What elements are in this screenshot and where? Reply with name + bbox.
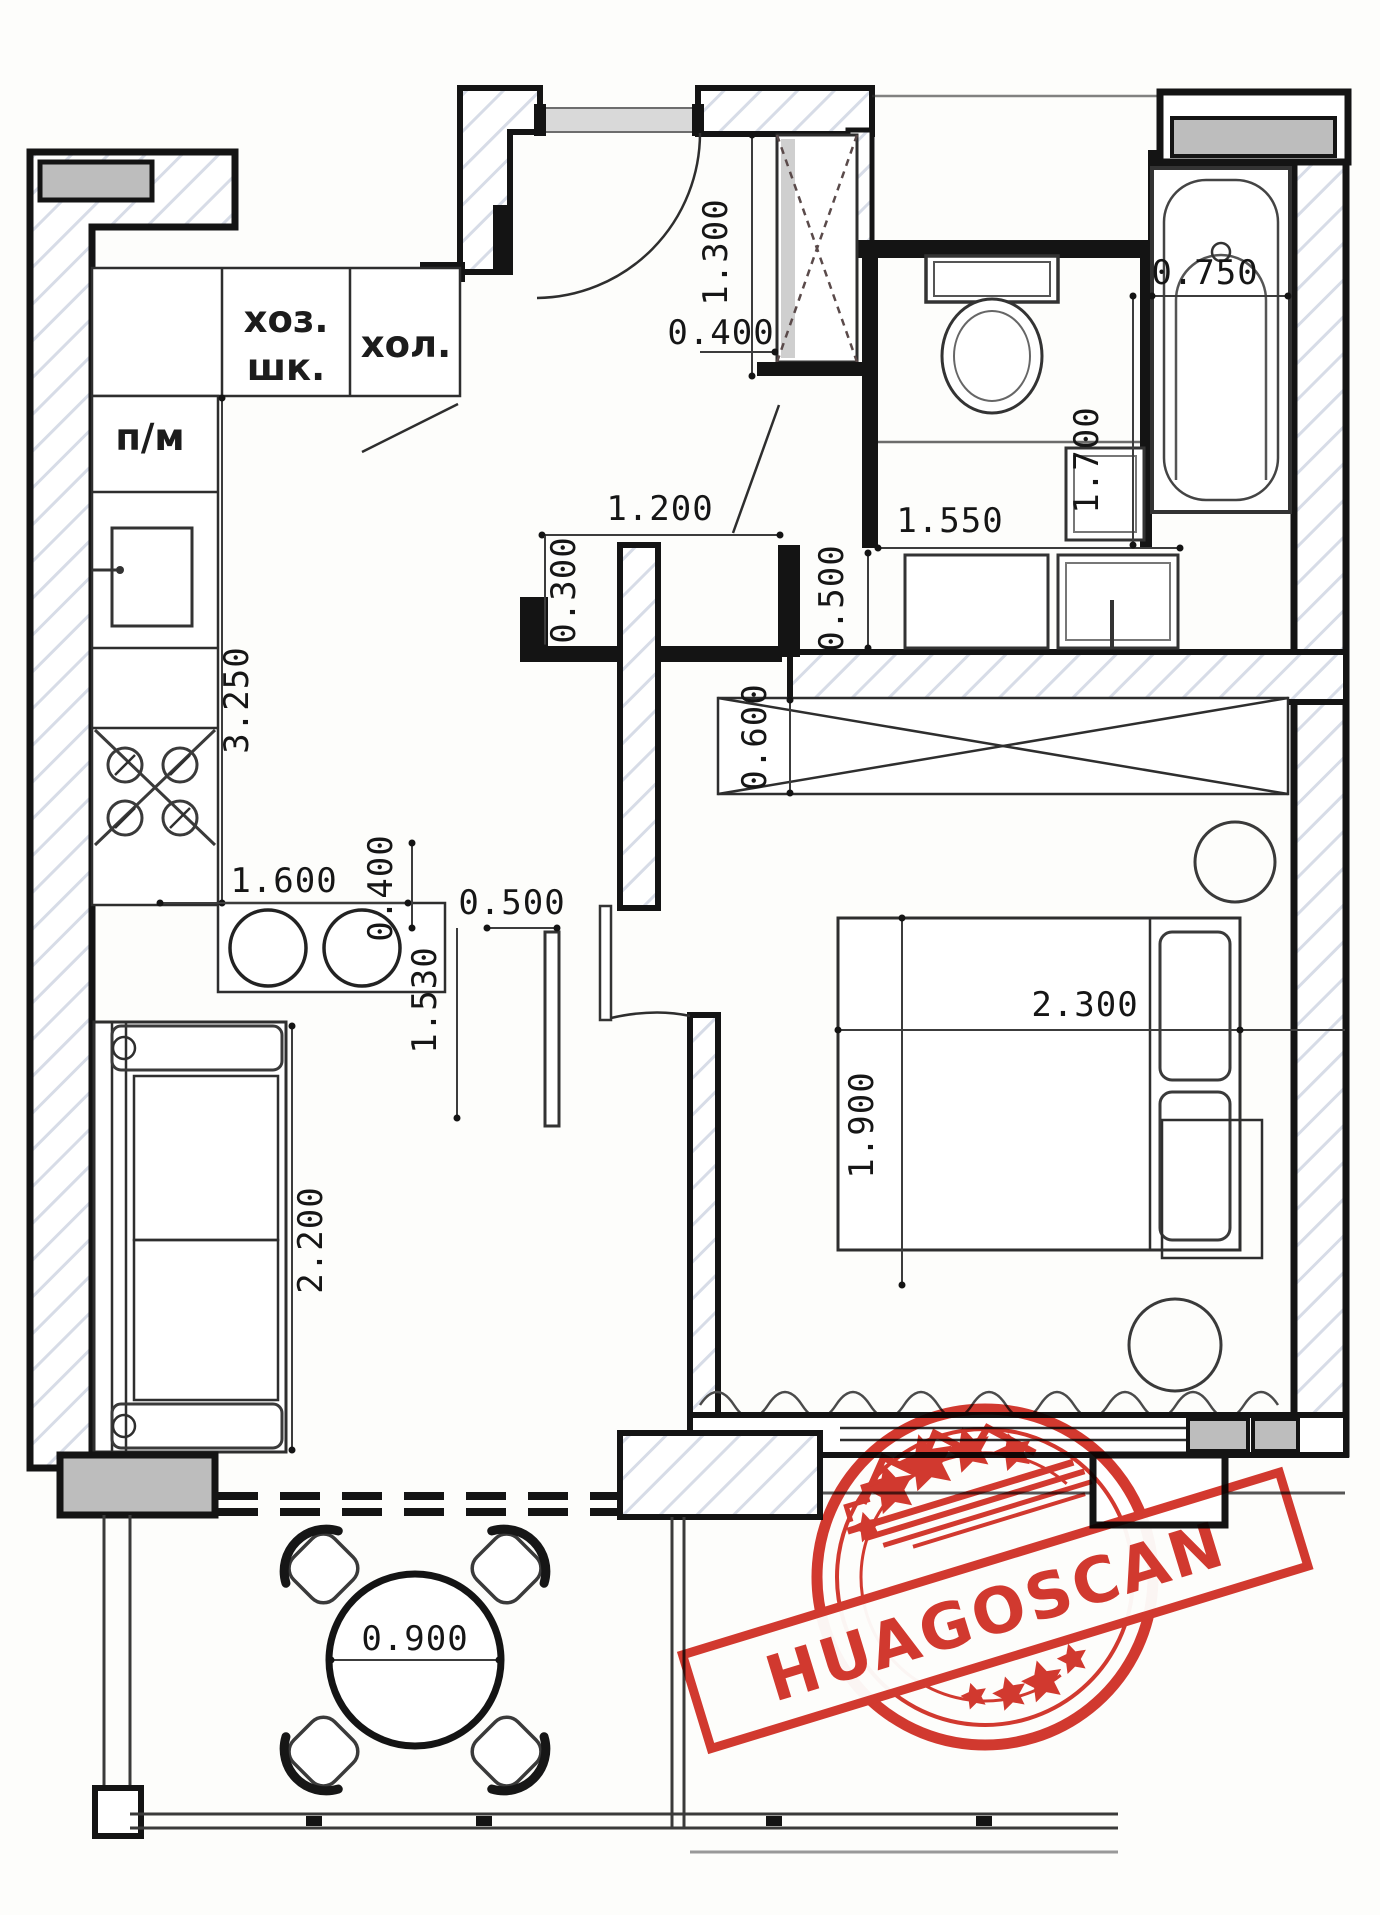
dim-counter-end: 1.600	[230, 861, 337, 901]
dim-hall-width: 1.200	[606, 489, 713, 529]
wall-balcony-corner	[60, 1455, 215, 1515]
dim-vanity-depth: 0.500	[812, 544, 852, 651]
interior-walls	[520, 258, 1152, 1435]
vanity-icon	[905, 555, 1178, 648]
floor-plan-scan: хоз. шк. хол. п/м 1.300 0.400 0.750 1.70…	[0, 0, 1380, 1915]
bedroom	[690, 698, 1346, 1525]
label-fridge: хол.	[361, 323, 451, 366]
floor-plan: хоз. шк. хол. п/м 1.300 0.400 0.750 1.70…	[0, 0, 1380, 1915]
door-leaf	[540, 108, 698, 132]
dim-wc-width: 1.550	[896, 501, 1003, 541]
wall-top-band	[698, 88, 872, 134]
dim-bed-width: 1.900	[842, 1071, 882, 1178]
wall-bedroom-left-upper	[620, 545, 658, 908]
tv-panel-icon	[545, 932, 559, 1126]
vent-block-top-left	[40, 162, 152, 200]
dim-tv-gap: 0.400	[361, 834, 401, 941]
toilet-icon	[926, 256, 1058, 413]
dim-tub-length: 1.700	[1067, 406, 1107, 513]
label-utility-closet-1: хоз.	[244, 298, 329, 341]
dim-wardrobe-depth: 0.600	[735, 683, 775, 790]
armchair-icon	[1195, 822, 1275, 902]
dim-tv-length: 1.530	[405, 946, 445, 1053]
label-dishwasher: п/м	[115, 416, 184, 459]
dim-counter-length: 3.250	[217, 646, 257, 753]
entrance-door	[534, 104, 704, 298]
wall-bedroom-balcony	[620, 1433, 820, 1517]
dim-sofa-length: 2.200	[291, 1186, 331, 1293]
dim-hall-nib: 0.300	[544, 536, 584, 643]
wardrobe-icon	[718, 698, 1288, 794]
dim-tv-width: 0.500	[458, 883, 565, 923]
wall-right	[1294, 162, 1346, 1454]
bathtub-icon	[1152, 168, 1290, 512]
wall-bedroom-left-lower	[690, 1015, 718, 1435]
wall-nib	[493, 205, 509, 270]
dim-closet-depth: 0.400	[667, 313, 774, 353]
dim-table-diameter: 0.900	[361, 1619, 468, 1659]
huagoscan-stamp: HUAGOSCAN	[638, 1325, 1333, 1829]
sofa-icon	[94, 1022, 286, 1452]
dim-tub-width: 0.750	[1151, 253, 1258, 293]
pouf-icon	[1129, 1299, 1221, 1391]
door-swing-arc	[537, 133, 700, 298]
bedroom-door	[600, 906, 690, 1020]
dim-closet-height: 1.300	[696, 198, 736, 305]
wall-bath-bottom	[790, 652, 1346, 702]
label-utility-closet-2: шк.	[247, 346, 325, 389]
balcony-table-set	[270, 1515, 559, 1804]
dim-bed-length: 2.300	[1031, 985, 1138, 1025]
